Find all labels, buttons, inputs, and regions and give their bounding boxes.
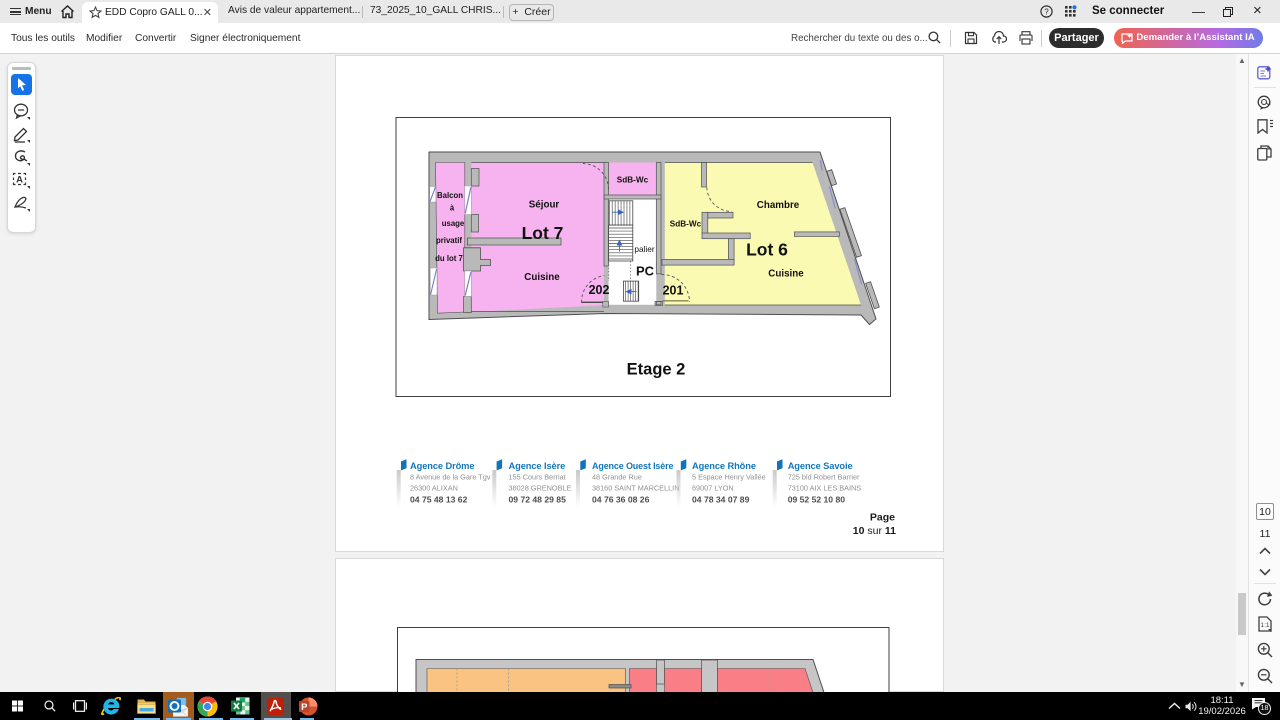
svg-text:09 52 52 10 80: 09 52 52 10 80 <box>788 495 846 505</box>
svg-text:Cuisine: Cuisine <box>768 269 804 280</box>
svg-text:Balcon: Balcon <box>437 191 463 200</box>
svg-text:Lot 7: Lot 7 <box>522 223 564 243</box>
svg-text:SdB-Wc: SdB-Wc <box>670 220 702 229</box>
svg-text:à: à <box>450 204 455 213</box>
svg-text:38028 GRENOBLE: 38028 GRENOBLE <box>509 484 572 493</box>
svg-text:04 78 34 07 89: 04 78 34 07 89 <box>692 495 750 505</box>
svg-text:Agence Drôme: Agence Drôme <box>410 461 474 471</box>
svg-text:04 75 48 13 62: 04 75 48 13 62 <box>410 495 468 505</box>
svg-text:P: P <box>301 702 308 713</box>
svg-text:Agence Savoie: Agence Savoie <box>788 461 853 471</box>
svg-text:155 Cours Berriat: 155 Cours Berriat <box>509 473 566 482</box>
svg-text:A: A <box>16 175 23 186</box>
svg-text:Cuisine: Cuisine <box>524 272 560 283</box>
svg-text:Page: Page <box>870 512 895 524</box>
svg-text:palier: palier <box>634 244 655 254</box>
svg-text:Chambre: Chambre <box>757 200 800 211</box>
svg-text:202: 202 <box>589 283 610 297</box>
svg-text:du lot 7: du lot 7 <box>435 254 463 263</box>
svg-text:09 72 48 29 85: 09 72 48 29 85 <box>509 495 567 505</box>
svg-text:201: 201 <box>663 284 684 298</box>
svg-text:privatif: privatif <box>436 236 462 245</box>
svg-text:Séjour: Séjour <box>529 200 560 211</box>
svg-text:PC: PC <box>636 264 655 279</box>
svg-text:26300 ALIXAN: 26300 ALIXAN <box>410 484 458 493</box>
svg-text:38160 SAINT MARCELLIN: 38160 SAINT MARCELLIN <box>592 484 679 493</box>
svg-text:725 bld Robert Barrier: 725 bld Robert Barrier <box>788 473 860 482</box>
svg-text:Etage 2: Etage 2 <box>627 361 686 379</box>
svg-text:SdB-Wc: SdB-Wc <box>617 176 649 185</box>
svg-text:04 76 36 08 26: 04 76 36 08 26 <box>592 495 650 505</box>
svg-text:Agence Isère: Agence Isère <box>509 461 566 471</box>
svg-text:69007 LYON: 69007 LYON <box>692 484 734 493</box>
svg-text:8 Avenue de la Gare Tgv: 8 Avenue de la Gare Tgv <box>410 473 491 482</box>
svg-text:usage: usage <box>442 219 465 228</box>
svg-text:?: ? <box>1044 7 1049 16</box>
svg-text:5 Espace Henry Vallée: 5 Espace Henry Vallée <box>692 473 766 482</box>
svg-text:Agence Ouest Isère: Agence Ouest Isère <box>592 461 673 471</box>
svg-text:1:1: 1:1 <box>1260 622 1269 629</box>
svg-text:Agence Rhône: Agence Rhône <box>692 461 756 471</box>
svg-text:48 Grande Rue: 48 Grande Rue <box>592 473 642 482</box>
svg-text:10 sur 11: 10 sur 11 <box>853 525 896 537</box>
svg-text:73100 AIX LES BAINS: 73100 AIX LES BAINS <box>788 484 862 493</box>
svg-text:Lot 6: Lot 6 <box>746 240 788 260</box>
